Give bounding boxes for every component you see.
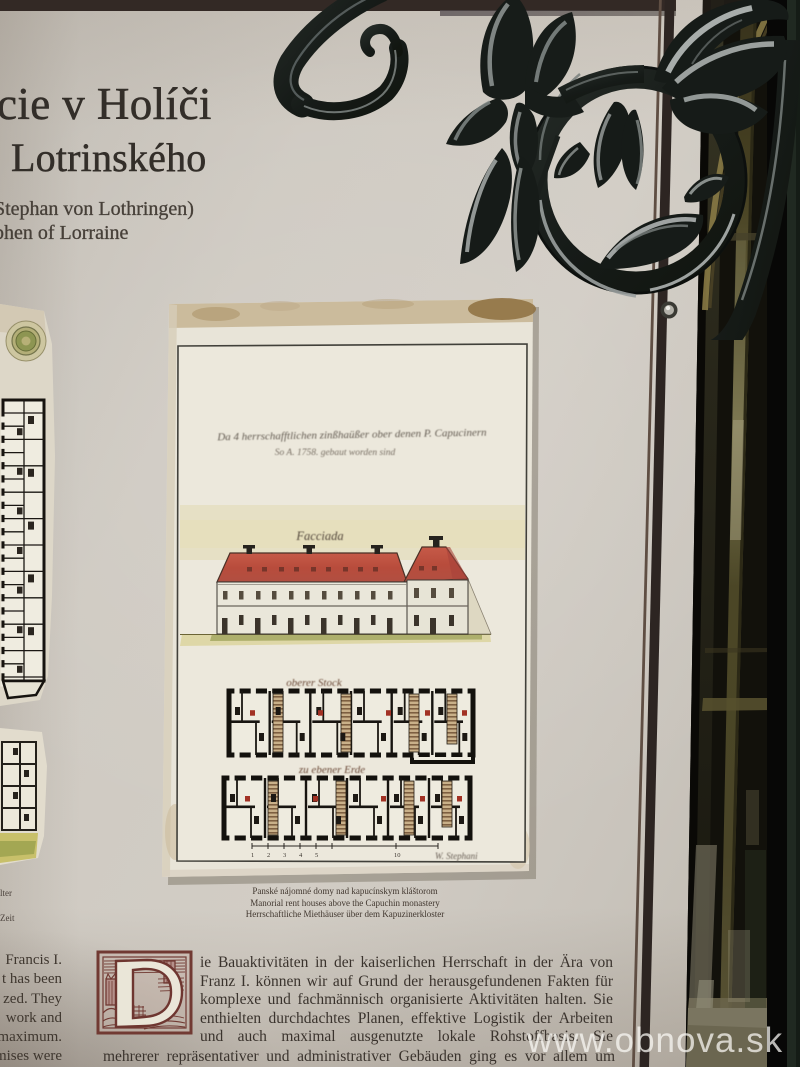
svg-text:oberer Stock: oberer Stock [286,677,343,689]
svg-text:1: 1 [251,852,254,859]
svg-text:10: 10 [394,852,401,859]
svg-text:W. Stephani: W. Stephani [435,851,478,861]
svg-text:Facciada: Facciada [295,529,343,543]
svg-text:zu ebener Erde: zu ebener Erde [298,764,365,776]
svg-text:2: 2 [267,852,270,859]
svg-text:3: 3 [283,852,286,859]
svg-text:5: 5 [315,852,318,859]
svg-text:So A. 1758. gebaut worden sind: So A. 1758. gebaut worden sind [275,448,396,458]
